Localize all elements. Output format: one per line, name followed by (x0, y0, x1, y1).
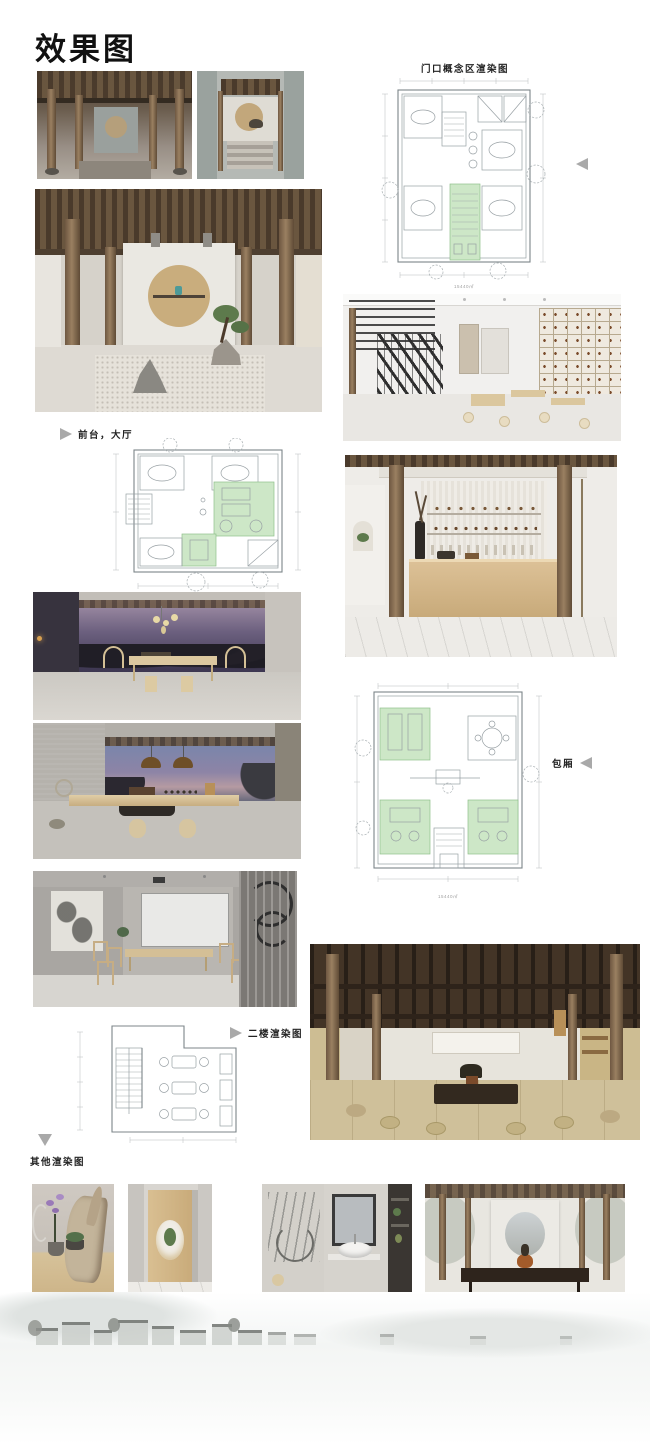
bonsai-foliage (231, 321, 249, 333)
distant-house (470, 1336, 486, 1345)
private-room-label: 包厢 (552, 756, 592, 770)
slat-screen (239, 871, 297, 1007)
niche-plant (164, 1228, 176, 1246)
rendering-night-dining (33, 592, 301, 720)
floor (33, 672, 301, 720)
village-house (268, 1332, 286, 1345)
projection-screen (141, 893, 229, 947)
eave-beam (105, 737, 275, 746)
wood-column (75, 95, 83, 169)
dome-pendant (173, 757, 193, 768)
armchair (225, 646, 246, 668)
straw-cushion (380, 1116, 400, 1129)
moon-shelf (153, 295, 205, 298)
roof-beam (345, 455, 617, 467)
plant (393, 1208, 401, 1216)
village-house (94, 1330, 112, 1345)
tea-jars-row (431, 505, 537, 512)
tea-cups (163, 789, 197, 795)
ink-tree (108, 1318, 120, 1332)
stair-railing (377, 334, 443, 394)
stool (499, 416, 510, 427)
wood-column (175, 89, 184, 169)
table-leg (211, 665, 213, 681)
wood-table (511, 390, 545, 397)
page-title: 效果图 (35, 24, 137, 69)
distant-lantern (37, 636, 42, 641)
wood-column (47, 89, 56, 169)
decor-ring (55, 779, 73, 797)
panel-seam (581, 479, 583, 619)
shelf-line (391, 1198, 409, 1201)
tea-box (465, 553, 479, 559)
counter-top-edge (409, 559, 559, 562)
wood-panel-wall (581, 479, 617, 619)
pendant-lamp (161, 626, 166, 634)
wood-column (149, 95, 157, 169)
dark-table (461, 1268, 589, 1282)
straw-cushion (554, 1116, 574, 1129)
orchid-flower (56, 1194, 64, 1200)
floor-plan-second-floor (68, 1022, 243, 1147)
stool (145, 676, 157, 692)
shelf (427, 513, 541, 515)
projector (153, 877, 165, 883)
pot-plant (521, 1244, 529, 1256)
floor-plan-private-rooms (350, 678, 546, 890)
downlight (103, 875, 106, 878)
shelf-items (582, 1050, 608, 1054)
private-plan-dimension: 15440㎡ (350, 894, 546, 900)
spiral-stair (276, 1224, 314, 1262)
downlight (543, 298, 546, 301)
table-leg (129, 957, 131, 971)
stone-mat (79, 161, 151, 179)
low-table (434, 1084, 518, 1104)
bonsai-silhouette (249, 119, 263, 128)
wood-column (557, 465, 572, 635)
shelf (427, 533, 541, 535)
rendering-moonwall-steps (197, 71, 304, 179)
dome-pendant (141, 757, 161, 768)
stone (49, 819, 65, 829)
wood-column (603, 1194, 610, 1280)
downlight (503, 298, 506, 301)
vessel-sink (338, 1242, 372, 1258)
log-stool (129, 819, 146, 838)
stool (463, 412, 474, 423)
bonsai-on-table (129, 787, 155, 795)
gray-vase (48, 1242, 64, 1256)
rendering-meeting-room (33, 871, 297, 1007)
faucet (354, 1234, 356, 1244)
bonsai-pot (466, 1076, 478, 1084)
chair (97, 961, 114, 985)
dark-vase (415, 521, 425, 559)
pointer-right-icon (230, 1027, 242, 1039)
floor-plan-lobby (108, 438, 306, 593)
distant-house (380, 1334, 394, 1345)
bar-counter (409, 559, 559, 617)
village-house (62, 1322, 90, 1345)
rendering-courtyard-dark (37, 71, 192, 179)
rendering-dusk-tea-table (33, 723, 301, 859)
entrance-plan-dimension: 15440㎡ (378, 284, 550, 290)
table-leg (205, 957, 207, 971)
tea-set (437, 551, 455, 559)
stool (600, 1110, 620, 1123)
presentation-board: 效果图 (0, 0, 650, 1444)
long-table (125, 949, 213, 957)
straw-cushion (426, 1122, 446, 1135)
tea-caddy (205, 783, 215, 795)
display-cabinet (481, 328, 509, 374)
armchair (103, 646, 124, 668)
tea-table-slab (69, 795, 239, 806)
bookshelf-wall (539, 308, 621, 394)
wall-return (192, 1190, 198, 1282)
wood-column (278, 91, 283, 171)
eave-beam (79, 600, 265, 608)
rendering-pavilion-mirror (425, 1184, 625, 1296)
stool (579, 418, 590, 429)
floor-lamp (554, 1010, 566, 1036)
rendering-tatami-hall (310, 944, 640, 1140)
pointer-right-icon (60, 428, 72, 440)
second-floor-label-text: 二楼渲染图 (248, 1026, 303, 1040)
pointer-left-icon (576, 158, 588, 170)
side-cabinet (296, 255, 322, 347)
willow-silhouette (239, 763, 275, 801)
village-house (118, 1320, 148, 1345)
dining-table (129, 656, 217, 665)
rendering-reception-bar (345, 455, 617, 657)
door (459, 324, 479, 374)
plant (357, 533, 369, 542)
downlight (203, 875, 206, 878)
entrance-plan-label: 门口概念区渲染图 (380, 61, 550, 75)
stove-pipe (151, 233, 160, 247)
stove-pipe (203, 233, 212, 247)
stool (346, 1104, 366, 1117)
roof-beam (310, 1014, 640, 1019)
succulent (66, 1232, 84, 1242)
lintel (379, 467, 587, 478)
wood-column (465, 1198, 471, 1278)
orchid-flower (46, 1200, 54, 1206)
floor-plan-entrance (378, 74, 550, 286)
stone-steps (227, 141, 273, 169)
marble-floor (345, 617, 617, 657)
village-house (180, 1330, 206, 1345)
timber-roof (425, 1184, 625, 1198)
shelf-line (391, 1224, 409, 1227)
village-house (152, 1326, 174, 1345)
column-base (173, 168, 187, 175)
glass-decor (32, 1204, 50, 1242)
others-label-text: 其他渲染图 (30, 1154, 85, 1168)
village-house (294, 1334, 316, 1345)
wood-column (579, 1198, 585, 1278)
rendering-bathroom (262, 1184, 412, 1296)
clay-pot (517, 1254, 533, 1268)
timber-ceiling (221, 79, 280, 95)
wood-column (439, 1194, 446, 1280)
mist-hill (320, 1308, 650, 1358)
table-base (119, 806, 175, 816)
downlight (463, 298, 466, 301)
distant-house (560, 1336, 572, 1345)
plant (395, 1234, 402, 1243)
pointer-left-icon (580, 757, 592, 769)
orchid-stem (54, 1214, 56, 1242)
stool (181, 676, 193, 692)
moon-window (105, 116, 127, 138)
column-base (45, 168, 59, 175)
side-cabinet (35, 255, 61, 347)
table-leg (133, 665, 135, 681)
orchid-flower (52, 1208, 59, 1213)
ink-landscape-strip (0, 1292, 650, 1444)
pointer-down-icon (38, 1134, 52, 1146)
private-room-label-text: 包厢 (552, 756, 574, 770)
rendering-orchid-detail (32, 1184, 114, 1296)
potted-plant (117, 927, 129, 937)
others-label: 其他渲染图 (30, 1154, 85, 1168)
chair (93, 941, 108, 961)
side-wall (197, 71, 217, 179)
pendant-lamp (153, 616, 160, 623)
roof-beam (37, 98, 192, 103)
rendering-stair-library (343, 294, 621, 441)
wood-table (551, 398, 585, 405)
pendant-lamp (171, 614, 178, 621)
tea-jars-row (431, 525, 537, 532)
wood-column (389, 465, 404, 635)
ink-tree (228, 1318, 240, 1332)
timber-ceiling (37, 71, 192, 99)
village-house (238, 1330, 262, 1345)
roof-beam (310, 984, 640, 989)
second-floor-label: 二楼渲染图 (230, 1026, 303, 1040)
stool (272, 1274, 284, 1286)
shelf-items (582, 1036, 608, 1040)
wall-niche (432, 1032, 520, 1054)
wood-column (218, 91, 223, 171)
side-wall (284, 71, 304, 179)
stool (539, 412, 550, 423)
pendant-stem (161, 606, 162, 620)
wood-table (471, 394, 505, 406)
straw-cushion (506, 1122, 526, 1135)
tea-set (141, 652, 171, 656)
log-stool (179, 819, 196, 838)
teal-vase (175, 286, 182, 295)
ink-tree (28, 1320, 42, 1336)
rendering-moon-window-hall (35, 189, 322, 412)
